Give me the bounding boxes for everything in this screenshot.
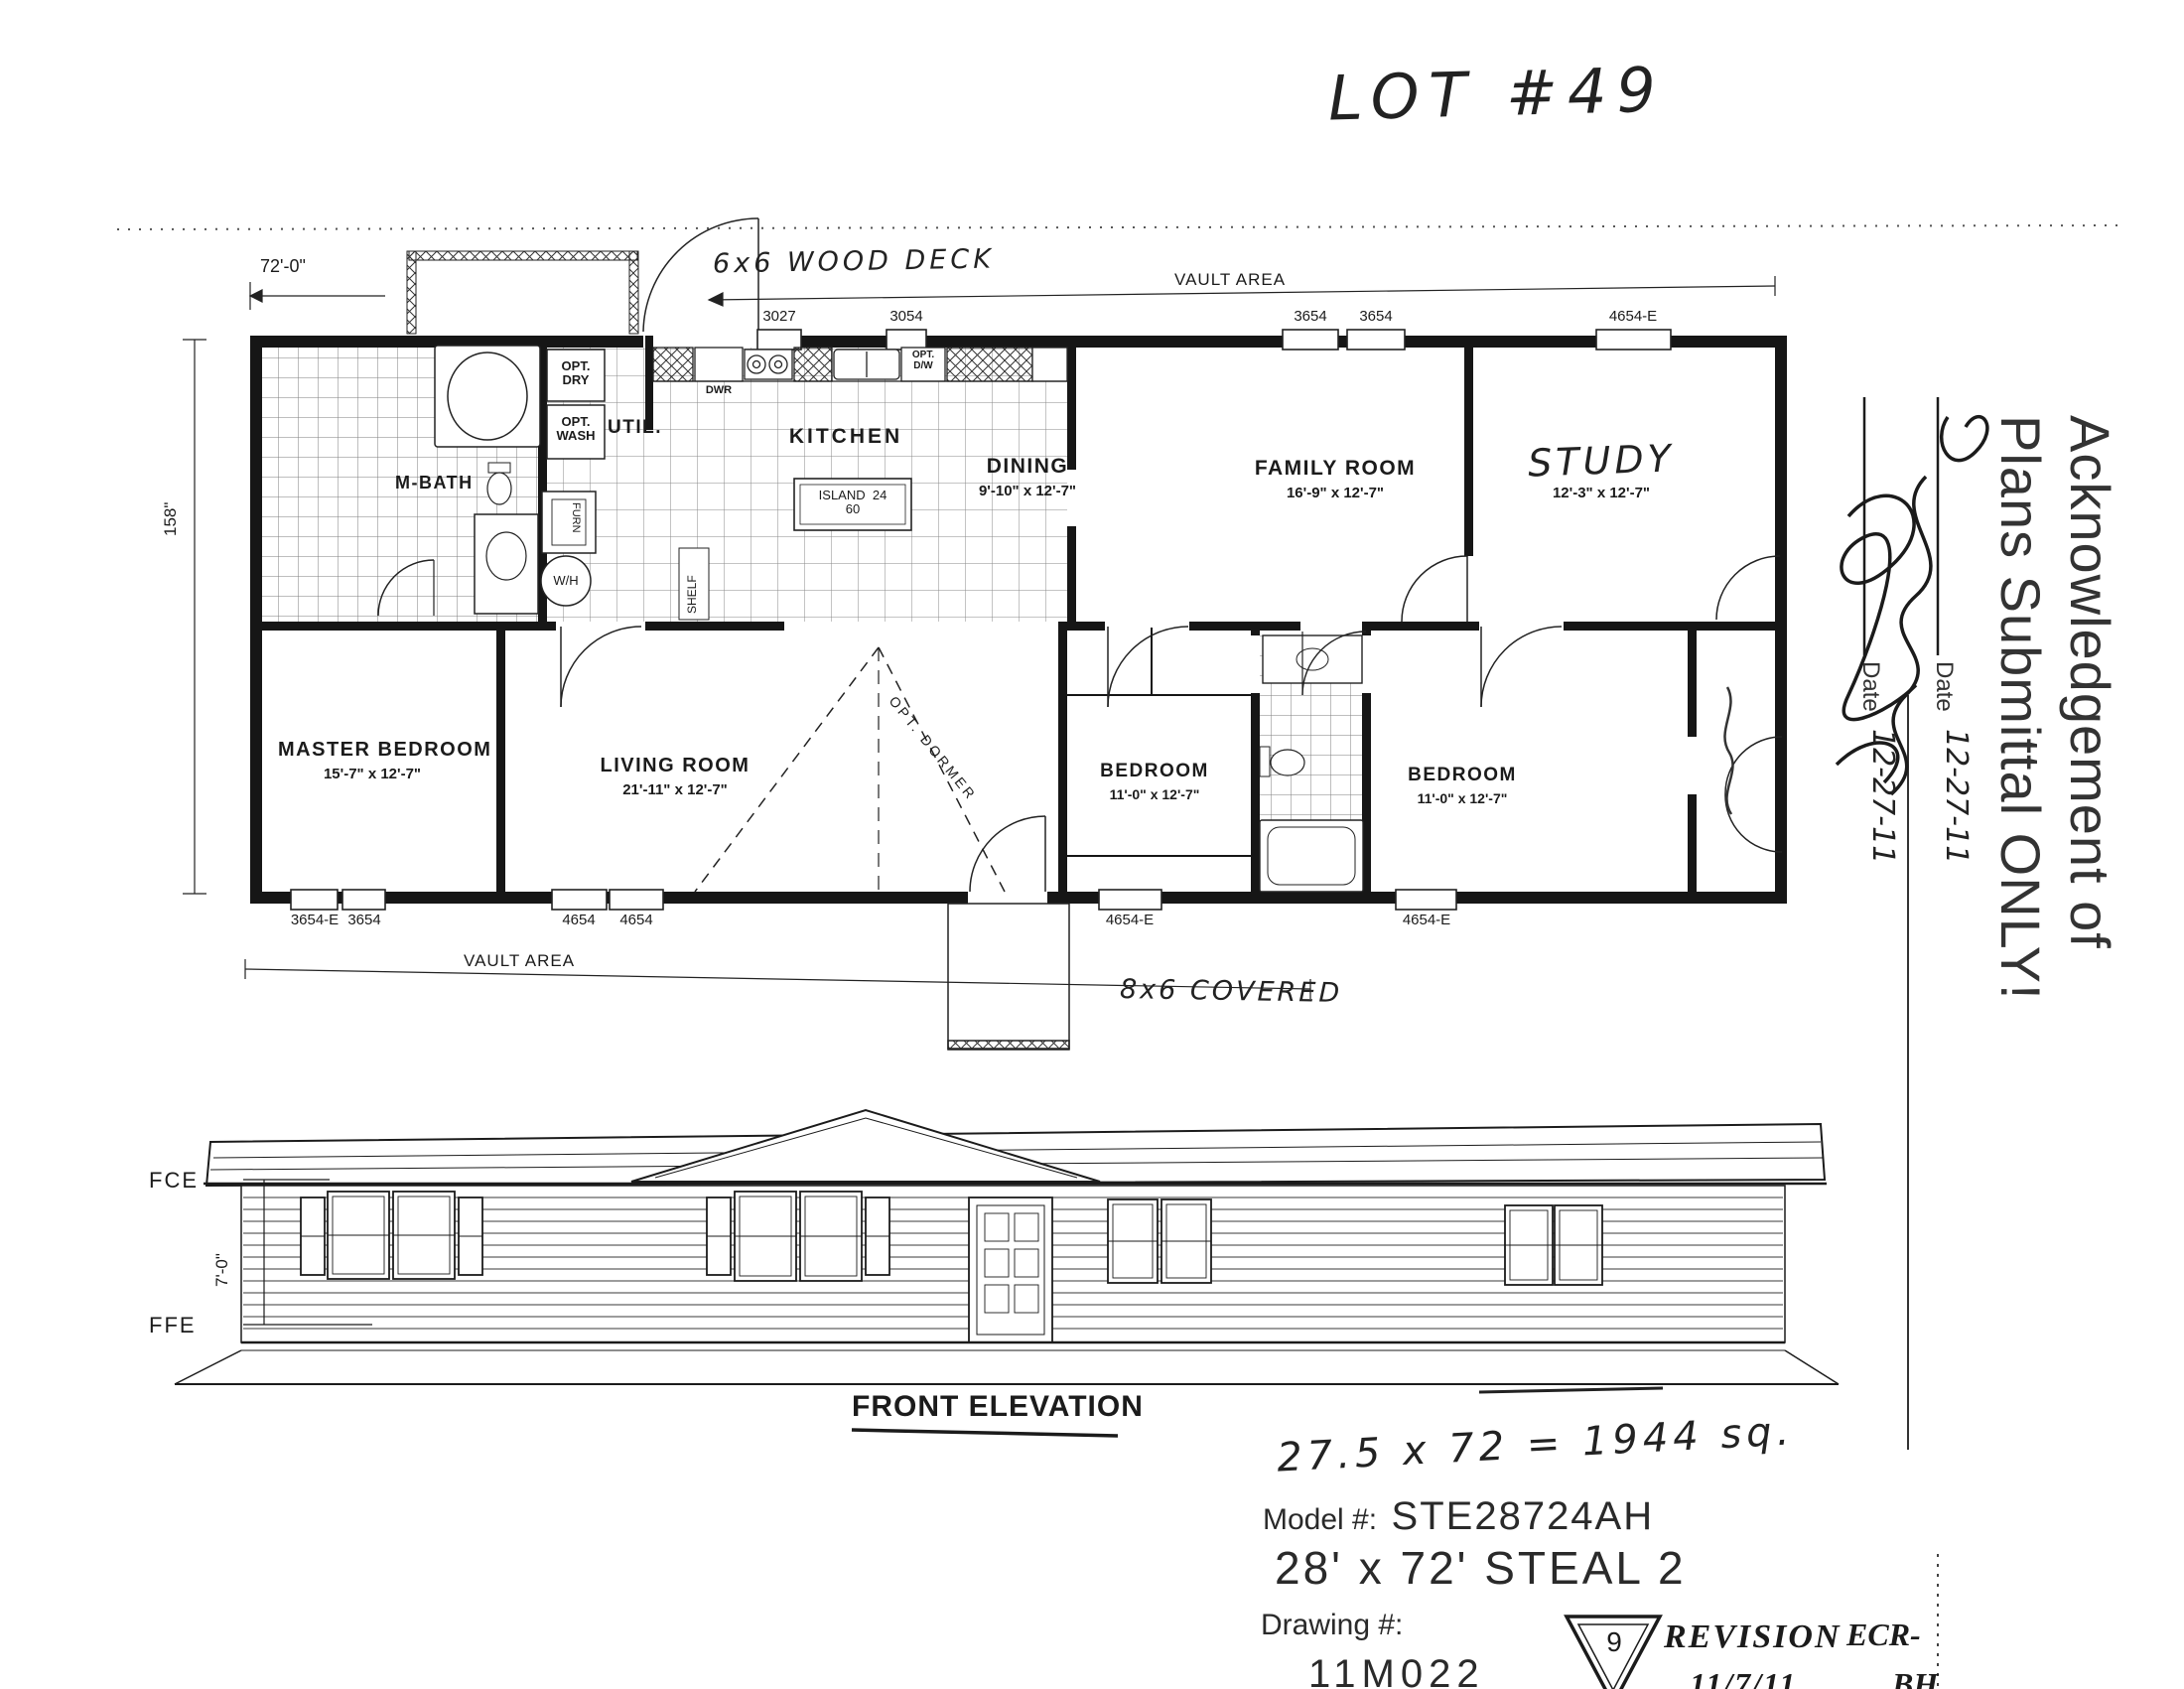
room-label-master-bedroom: MASTER BEDROOM 15'-7" x 12'-7" xyxy=(278,739,467,782)
revision-date: 11/7/11 xyxy=(1690,1666,1797,1689)
window-tag: 4654-E xyxy=(1595,308,1671,325)
opt-dw-label: OPT. D/W xyxy=(901,351,945,371)
front-door-icon xyxy=(969,1197,1052,1342)
date-label-2: Date xyxy=(1930,661,1958,712)
overall-depth-dim: 158" xyxy=(161,502,181,536)
front-elevation-title: FRONT ELEVATION xyxy=(852,1390,1144,1424)
date-label-1: Date xyxy=(1856,661,1884,712)
title-underline xyxy=(852,1430,1118,1436)
room-label-util: UTIL. xyxy=(608,417,662,439)
lot-number: LOT #49 xyxy=(1327,54,1667,135)
hall-partitions xyxy=(1062,628,1251,856)
opt-dry-label: OPT. DRY xyxy=(547,359,605,386)
ecr-value: BH xyxy=(1892,1666,1938,1689)
island-label: ISLAND 24 60 xyxy=(794,489,911,515)
handwritten-closet-note xyxy=(1724,687,1732,814)
scanned-floor-plan-page: LOT #49 6x6 WOOD DECK VAULT AREA VAULT A… xyxy=(0,0,2184,1689)
revision-label: REVISION xyxy=(1664,1619,1842,1656)
size-title: 28' x 72' STEAL 2 xyxy=(1275,1541,1687,1595)
ecr-label: ECR- xyxy=(1846,1617,1921,1653)
window-tag: 3654 xyxy=(1338,308,1414,325)
window-tag: 3027 xyxy=(742,308,817,325)
overall-width-dim: 72'-0" xyxy=(260,256,306,277)
vault-area-bottom: VAULT AREA xyxy=(459,951,580,971)
room-label-mbath: M-BATH xyxy=(395,473,474,493)
window-tag: 3654 xyxy=(327,912,402,928)
ffe-label: FFE xyxy=(149,1313,197,1338)
window-tag: 4654-E xyxy=(1092,912,1167,928)
date-value-1: 12-27-11 xyxy=(1865,729,1900,864)
opt-wash-label: OPT. WASH xyxy=(547,415,605,442)
deck-note: 6x6 WOOD DECK xyxy=(713,244,995,280)
window-tag: 3054 xyxy=(869,308,944,325)
room-label-family-room: FAMILY ROOM 16'-9" x 12'-7" xyxy=(1246,457,1425,501)
covered-porch-note: 8x6 COVERED xyxy=(1120,974,1343,1009)
furnace-label: FURN xyxy=(570,502,582,533)
vault-area-top: VAULT AREA xyxy=(1169,270,1291,290)
plan-line-art xyxy=(0,0,2184,1689)
room-label-dining: DINING 9'-10" x 12'-7" xyxy=(948,455,1107,499)
room-label-bedroom-1: BEDROOM 11'-0" x 12'-7" xyxy=(1090,761,1219,802)
front-elevation-drawing xyxy=(175,1110,1839,1436)
model-label: Model #: xyxy=(1263,1503,1377,1536)
model-line: Model #: STE28724AH xyxy=(1263,1494,1654,1539)
drawing-label: Drawing #: xyxy=(1261,1609,1403,1642)
drawing-value: 11M022 xyxy=(1308,1652,1485,1689)
wood-deck xyxy=(407,218,758,334)
revision-number: 9 xyxy=(1602,1626,1626,1658)
shelf-label: SHELF xyxy=(685,575,699,614)
room-label-living-room: LIVING ROOM 21'-11" x 12'-7" xyxy=(596,755,754,798)
acknowledgement-stamp: Acknowledgement of Plans Submittal ONLY! xyxy=(1985,415,2124,1001)
water-heater-label: W/H xyxy=(548,573,584,588)
dwr-label: DWR xyxy=(695,385,743,397)
model-value: STE28724AH xyxy=(1392,1494,1655,1538)
fce-label: FCE xyxy=(149,1168,199,1194)
toilet-icon xyxy=(1260,747,1270,776)
covered-porch xyxy=(948,816,1069,1050)
window-tag: 4654-E xyxy=(1389,912,1464,928)
window-tag: 3654 xyxy=(1273,308,1348,325)
date-value-2: 12-27-11 xyxy=(1939,729,1974,864)
room-label-study: STUDY 12'-3" x 12'-7" xyxy=(1517,439,1686,501)
room-label-kitchen: KITCHEN xyxy=(786,425,905,449)
elevation-height-dim: 7'-0" xyxy=(212,1253,232,1287)
toilet-icon xyxy=(488,463,510,473)
room-label-bedroom-2: BEDROOM 11'-0" x 12'-7" xyxy=(1398,765,1527,806)
kitchen-counter xyxy=(653,348,1067,381)
window-tag: 4654 xyxy=(599,912,674,928)
